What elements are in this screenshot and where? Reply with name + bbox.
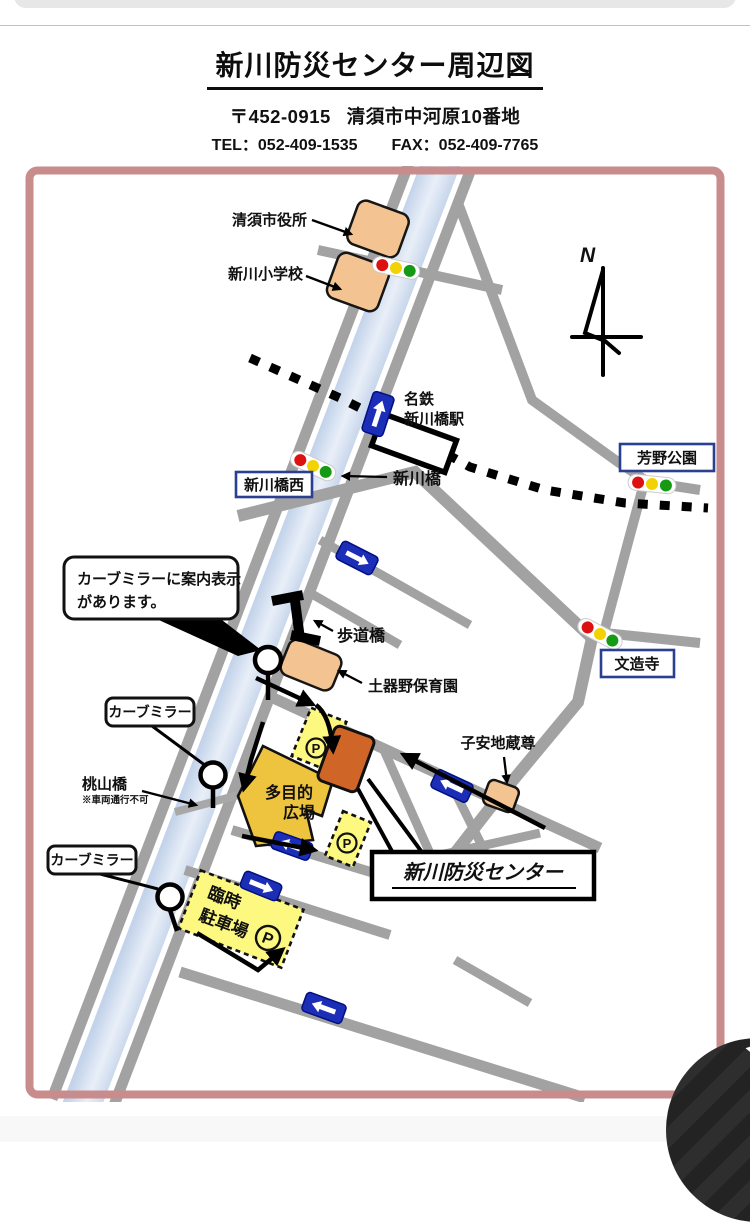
map-figure: 名鉄 新川橋駅 多目的 広場 P P 臨時 駐車場 P <box>25 166 725 1102</box>
svg-text:子安地蔵尊: 子安地蔵尊 <box>460 734 535 752</box>
browser-bar-remnant <box>14 0 736 8</box>
svg-text:新川防災センター: 新川防災センター <box>403 861 564 884</box>
svg-text:桃山橋: 桃山橋 <box>82 775 128 793</box>
page-header: 新川防災センター周辺図 〒452-0915清須市中河原10番地 TEL：052-… <box>0 44 750 155</box>
svg-text:土器野保育園: 土器野保育園 <box>368 677 458 695</box>
mirror-callout-line1: カーブミラーに案内表示 <box>77 570 241 588</box>
svg-text:カーブミラー: カーブミラー <box>108 704 191 720</box>
svg-text:P: P <box>312 741 321 756</box>
bunzoji-box: 文造寺 <box>601 650 674 677</box>
momoyama-note: ※車両通行不可 <box>82 794 149 806</box>
svg-text:新川橋西: 新川橋西 <box>244 476 304 494</box>
station-label-line1: 名鉄 <box>404 390 434 408</box>
bridge-west-box: 新川橋西 <box>236 472 312 497</box>
plaza-label-line1: 多目的 <box>265 783 313 802</box>
svg-text:文造寺: 文造寺 <box>614 655 659 673</box>
tel-text: TEL：052-409-1535 <box>212 137 358 154</box>
postal-code: 〒452-0915 <box>230 106 331 127</box>
svg-text:清須市役所: 清須市役所 <box>232 211 307 229</box>
svg-text:P: P <box>343 836 352 851</box>
page-title: 新川防災センター周辺図 <box>207 44 542 90</box>
fax-text: FAX：052-409-7765 <box>392 137 539 154</box>
mirror-callout-line2: があります。 <box>77 593 166 611</box>
svg-text:新川小学校: 新川小学校 <box>228 265 304 283</box>
address-text: 清須市中河原10番地 <box>347 106 521 127</box>
svg-text:新川橋: 新川橋 <box>393 469 442 488</box>
bottom-strip <box>0 1116 750 1142</box>
svg-text:歩道橋: 歩道橋 <box>337 626 386 645</box>
address-line: 〒452-0915清須市中河原10番地 <box>0 103 750 129</box>
compass-n-label: N <box>580 244 596 267</box>
plaza-label-line2: 広場 <box>283 803 315 822</box>
svg-text:カーブミラー: カーブミラー <box>50 852 133 868</box>
header-divider <box>0 25 750 26</box>
svg-text:芳野公園: 芳野公園 <box>637 449 697 467</box>
telfax-line: TEL：052-409-1535FAX：052-409-7765 <box>0 131 750 155</box>
yoshino-park-box: 芳野公園 <box>620 444 714 471</box>
station-label-line2: 新川橋駅 <box>404 410 465 428</box>
